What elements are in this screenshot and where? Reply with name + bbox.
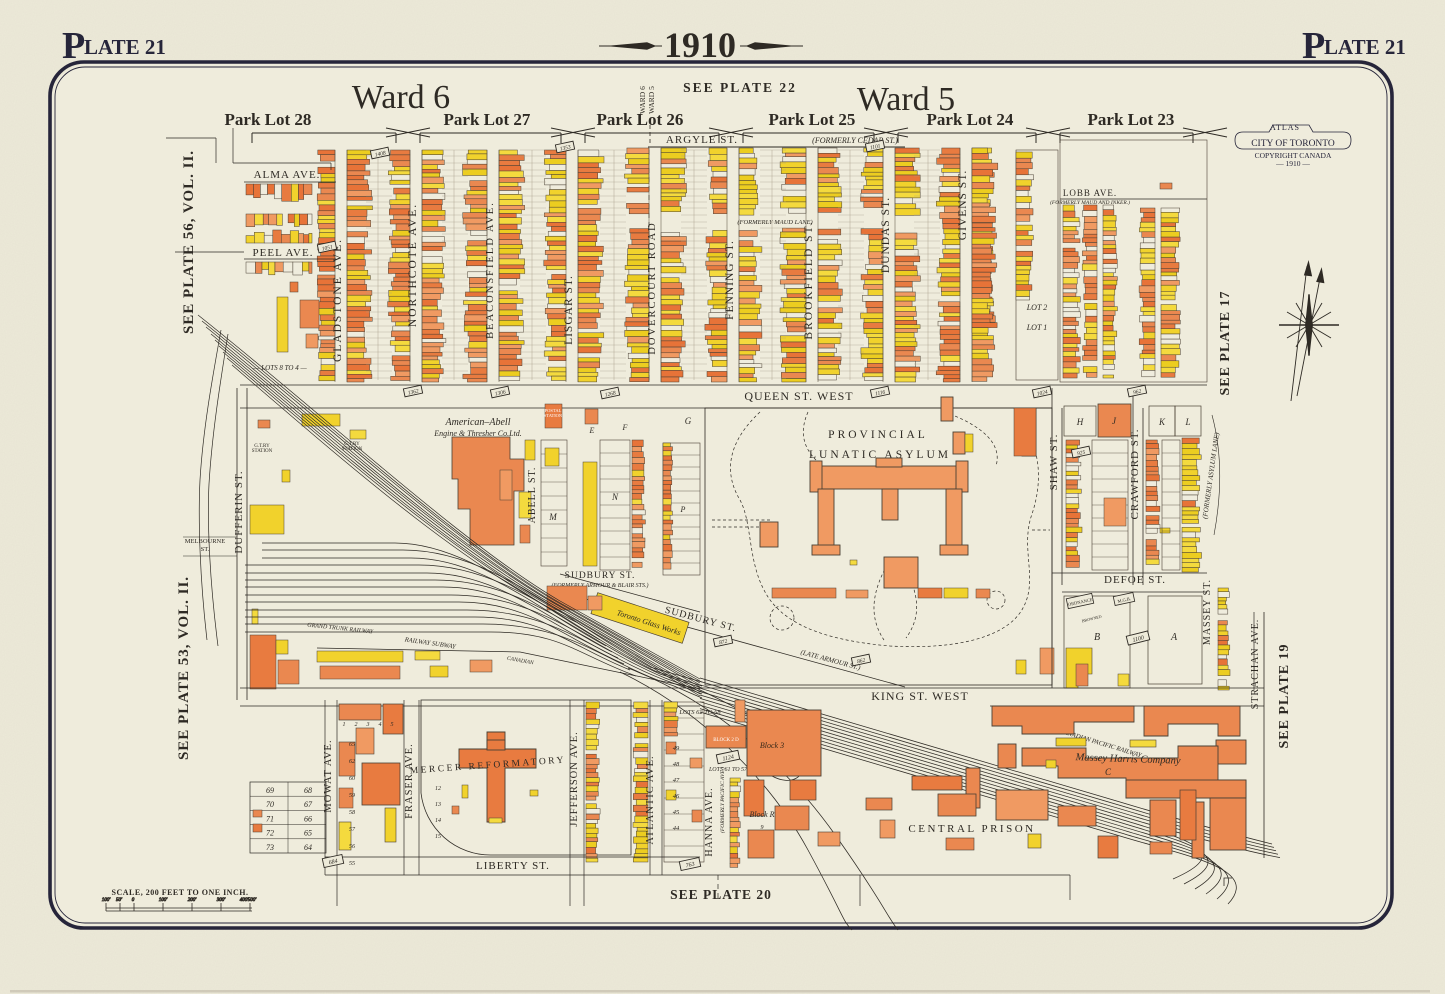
svg-text:ABELL ST.: ABELL ST. (527, 467, 538, 524)
svg-text:SEE PLATE 20: SEE PLATE 20 (670, 887, 772, 902)
svg-text:GIVENS ST.: GIVENS ST. (957, 170, 969, 240)
svg-text:LOT 1: LOT 1 (1026, 323, 1048, 332)
svg-text:3: 3 (366, 722, 370, 728)
svg-text:4: 4 (379, 721, 382, 728)
svg-text:K: K (1158, 417, 1166, 427)
svg-text:F: F (622, 423, 628, 432)
svg-text:MASSEY ST.: MASSEY ST. (1202, 579, 1213, 645)
svg-text:L: L (1184, 417, 1190, 427)
svg-text:62: 62 (349, 759, 355, 765)
svg-text:SUDBURY ST.: SUDBURY ST. (565, 571, 636, 581)
svg-text:73: 73 (266, 843, 274, 852)
svg-text:64: 64 (304, 843, 312, 852)
svg-text:PROVINCIAL: PROVINCIAL (828, 429, 928, 441)
svg-text:E: E (589, 426, 595, 435)
svg-text:500': 500' (248, 898, 258, 903)
svg-text:CENTRAL PRISON: CENTRAL PRISON (908, 823, 1035, 835)
svg-text:FRASER AVE.: FRASER AVE. (404, 743, 415, 819)
svg-text:58: 58 (349, 810, 355, 816)
svg-text:1910: 1910 (664, 25, 736, 65)
svg-text:70: 70 (266, 800, 274, 809)
svg-text:P: P (1302, 25, 1325, 67)
svg-text:ATLANTIC AVE.: ATLANTIC AVE. (645, 755, 656, 844)
svg-text:48: 48 (673, 761, 680, 768)
svg-text:BLOCK 2 D: BLOCK 2 D (713, 738, 739, 743)
svg-text:P: P (62, 25, 85, 67)
svg-text:Park Lot 23: Park Lot 23 (1088, 110, 1175, 129)
svg-text:12: 12 (435, 786, 441, 792)
svg-text:55: 55 (349, 861, 355, 867)
svg-text:LOBB AVE.: LOBB AVE. (1063, 188, 1117, 198)
svg-text:Park Lot 28: Park Lot 28 (225, 110, 312, 129)
svg-text:Park Lot 25: Park Lot 25 (769, 110, 856, 129)
svg-text:ATLAS: ATLAS (1270, 123, 1300, 132)
svg-text:(FORMERLY CEDAR ST.): (FORMERLY CEDAR ST.) (812, 136, 898, 145)
svg-text:MELBOURNE: MELBOURNE (185, 538, 225, 545)
svg-text:QUEEN ST. WEST: QUEEN ST. WEST (744, 389, 853, 403)
svg-text:C: C (1105, 767, 1112, 777)
svg-text:WARD 5: WARD 5 (647, 86, 656, 114)
svg-text:STRACHAN AVE.: STRACHAN AVE. (1250, 619, 1261, 710)
svg-text:Park Lot 24: Park Lot 24 (927, 110, 1014, 129)
svg-text:HANNA AVE.: HANNA AVE. (704, 787, 715, 856)
svg-text:LATE 21: LATE 21 (1324, 35, 1406, 59)
svg-text:GLADSTONE AVE.: GLADSTONE AVE. (332, 238, 344, 362)
svg-text:69: 69 (266, 786, 274, 795)
svg-text:LOT 2: LOT 2 (1026, 303, 1048, 312)
svg-text:SCALE, 200 FEET TO ONE INCH.: SCALE, 200 FEET TO ONE INCH. (112, 888, 249, 897)
svg-text:CRAWFORD ST.: CRAWFORD ST. (1129, 429, 1141, 520)
svg-text:1: 1 (343, 722, 346, 728)
svg-text:Block R: Block R (749, 810, 774, 819)
svg-text:Park Lot 27: Park Lot 27 (444, 110, 531, 129)
svg-text:DEFOE ST.: DEFOE ST. (1104, 574, 1166, 586)
svg-text:LISGAR ST.: LISGAR ST. (563, 275, 575, 345)
svg-text:FENNING ST.: FENNING ST. (724, 240, 736, 320)
svg-text:9: 9 (761, 825, 764, 831)
svg-text:American–Abell: American–Abell (445, 417, 511, 428)
svg-text:Ward 6: Ward 6 (352, 79, 450, 116)
svg-text:46: 46 (673, 793, 680, 800)
svg-text:STATION: STATION (544, 413, 563, 418)
svg-text:65: 65 (349, 742, 355, 748)
svg-text:BROOKFIELD ST.: BROOKFIELD ST. (803, 220, 815, 339)
svg-text:BEACONSFIELD AVE.: BEACONSFIELD AVE. (485, 201, 496, 339)
svg-text:DUFFERIN ST.: DUFFERIN ST. (233, 470, 245, 553)
svg-text:49: 49 (673, 745, 680, 752)
svg-text:SHAW ST.: SHAW ST. (1048, 434, 1060, 491)
svg-text:SEE PLATE 19: SEE PLATE 19 (1277, 643, 1292, 748)
svg-text:M: M (548, 512, 557, 522)
svg-text:44: 44 (673, 825, 680, 832)
svg-text:CITY OF TORONTO: CITY OF TORONTO (1251, 139, 1335, 149)
svg-text:H: H (1076, 417, 1084, 427)
svg-text:LIBERTY ST.: LIBERTY ST. (476, 860, 550, 872)
svg-text:66: 66 (304, 814, 312, 823)
svg-text:B: B (1094, 632, 1100, 643)
svg-text:A: A (1170, 632, 1178, 643)
svg-text:60: 60 (349, 776, 355, 782)
svg-text:SEE PLATE 17: SEE PLATE 17 (1218, 290, 1233, 395)
svg-text:G: G (685, 416, 692, 426)
svg-text:WARD 6: WARD 6 (638, 86, 647, 114)
svg-text:STATION: STATION (252, 449, 273, 454)
svg-text:KING ST. WEST: KING ST. WEST (871, 689, 969, 703)
svg-text:SEE PLATE 22: SEE PLATE 22 (683, 80, 797, 95)
svg-text:200': 200' (188, 898, 198, 903)
svg-text:(FORMERLY MAUD LANE): (FORMERLY MAUD LANE) (737, 219, 812, 226)
svg-text:NORTHCOTE AVE.: NORTHCOTE AVE. (407, 203, 419, 327)
svg-text:ST.: ST. (201, 546, 210, 553)
svg-text:100': 100' (159, 898, 169, 903)
svg-text:SEE PLATE 53, VOL. II.: SEE PLATE 53, VOL. II. (176, 576, 192, 760)
svg-text:72: 72 (266, 829, 274, 838)
svg-text:47: 47 (673, 777, 680, 784)
svg-text:56: 56 (349, 844, 355, 850)
svg-text:— 1910 —: — 1910 — (1275, 159, 1310, 168)
svg-text:SEE PLATE 56, VOL. II.: SEE PLATE 56, VOL. II. (181, 150, 197, 334)
svg-text:(FORMERLY PACIFIC AVE.): (FORMERLY PACIFIC AVE.) (719, 767, 726, 833)
svg-text:50': 50' (116, 898, 123, 903)
svg-text:2: 2 (355, 722, 358, 728)
svg-text:Engine & Thresher Co.Ltd.: Engine & Thresher Co.Ltd. (433, 429, 521, 438)
svg-text:ALMA AVE.: ALMA AVE. (254, 169, 321, 181)
svg-text:300': 300' (217, 898, 227, 903)
svg-text:5: 5 (391, 722, 394, 728)
svg-text:LOTS 62 TO 58: LOTS 62 TO 58 (678, 709, 721, 716)
svg-text:14: 14 (435, 817, 441, 824)
svg-text:N: N (611, 492, 619, 502)
svg-text:P: P (680, 505, 686, 514)
svg-text:59: 59 (349, 793, 355, 799)
svg-text:15: 15 (435, 834, 441, 840)
svg-text:65: 65 (304, 829, 312, 838)
svg-text:LOTS 61 TO 57: LOTS 61 TO 57 (708, 767, 748, 773)
svg-text:— LOTS 8 TO 4 —: — LOTS 8 TO 4 — (252, 364, 307, 372)
svg-text:JEFFERSON AVE.: JEFFERSON AVE. (569, 731, 580, 827)
svg-text:LATE 21: LATE 21 (84, 35, 166, 59)
svg-text:67: 67 (304, 800, 313, 809)
svg-text:PEEL AVE.: PEEL AVE. (253, 247, 314, 259)
svg-text:45: 45 (673, 809, 680, 816)
svg-text:13: 13 (435, 802, 441, 808)
svg-text:71: 71 (266, 814, 274, 823)
svg-text:ARGYLE ST.: ARGYLE ST. (666, 134, 738, 146)
svg-text:68: 68 (304, 786, 312, 795)
svg-text:57: 57 (349, 827, 356, 833)
svg-text:Block 3: Block 3 (760, 741, 784, 750)
svg-text:100': 100' (102, 898, 112, 903)
svg-text:DOVERCOURT ROAD: DOVERCOURT ROAD (647, 221, 658, 354)
svg-text:DUNDAS ST.: DUNDAS ST. (880, 197, 892, 273)
